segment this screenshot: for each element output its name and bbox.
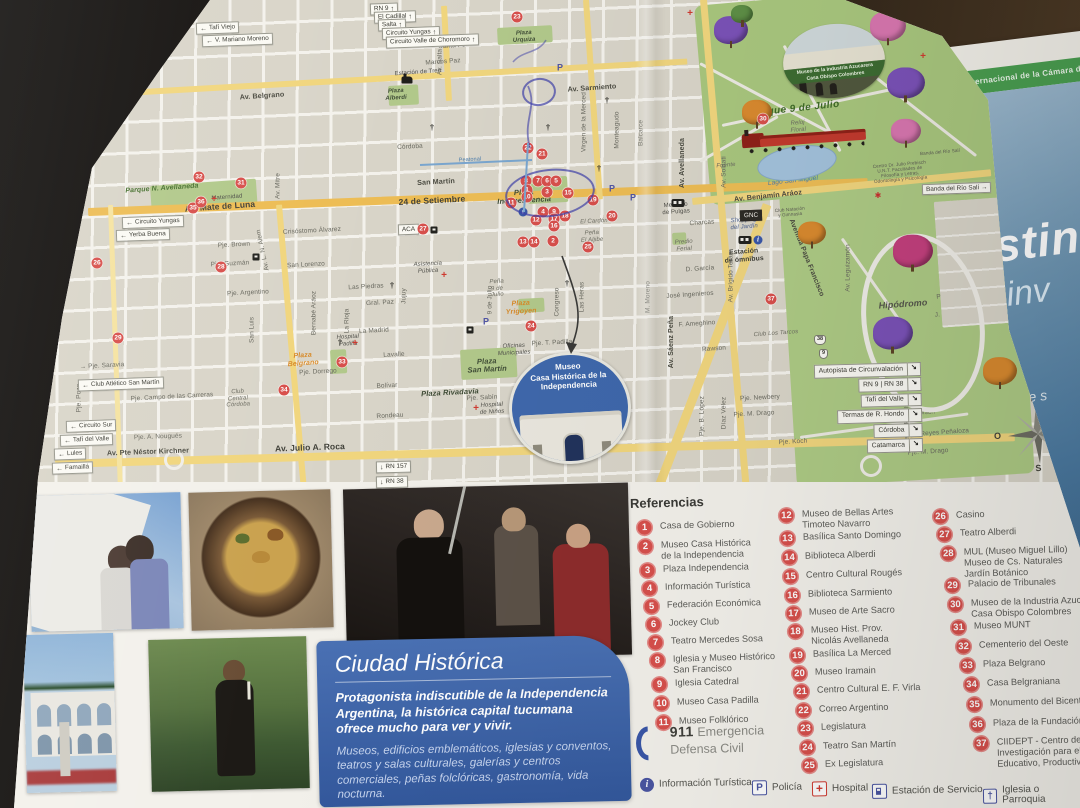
map-label: Plaza Alberdi [385, 88, 407, 103]
legend-item-hospital: +Hospital [812, 781, 868, 797]
map-label: Av. Soldati [720, 156, 727, 188]
park-tree [873, 317, 913, 350]
info-panel: Ciudad Histórica Protagonista indiscutib… [0, 482, 1080, 808]
map-label: Av. Sáenz Peña [668, 316, 676, 368]
reference-label: Correo Argentino [819, 700, 889, 719]
map-label: Av. Mitre [274, 173, 281, 199]
reference-item-13: 13Basílica Santo Domingo [779, 526, 957, 548]
reference-number: 21 [793, 683, 810, 700]
map-label: Av. Avellaneda [679, 138, 687, 188]
destination-sign: ←Yerba Buena [116, 228, 170, 242]
photo-couple-selfie [28, 492, 183, 632]
church-icon: † [605, 96, 609, 105]
map-label: Díaz Vélez [720, 397, 727, 429]
map-label: San Luis [248, 317, 255, 343]
map-marker-37: 37 [766, 294, 777, 305]
map-label: Pje. B. López [698, 396, 705, 436]
casa-historica-callout: Museo Casa Histórica de la Independencia [506, 349, 634, 467]
legend-label: Hospital [832, 783, 868, 794]
reference-label: Museo de Bellas Artes Timoteo Navarro [802, 504, 894, 530]
hosp-icon: + [473, 404, 479, 414]
map-marker-31: 31 [236, 178, 247, 189]
hosp-icon: + [920, 52, 926, 62]
church-icon: † [565, 279, 569, 288]
reference-number: 23 [797, 720, 814, 737]
legend-label: Estación de Servicio [892, 785, 983, 797]
gas-station-icon [872, 784, 887, 799]
map-marker-23: 23 [512, 12, 523, 23]
map-label: Jujuy [400, 288, 407, 304]
map-label: Córdoba [397, 143, 423, 152]
map-marker-2: 2 [548, 236, 559, 247]
ciudad-historica-body: Museos, edificios emblemáticos, iglesias… [336, 739, 613, 802]
park-tree [893, 235, 933, 268]
emergency-number: 911 [670, 723, 695, 740]
photo-locro-bowl [188, 489, 333, 630]
map-marker-24: 24 [526, 321, 537, 332]
map-label: La Rioja [343, 309, 350, 334]
map-label: El Cardón [580, 218, 608, 226]
reference-item-33: 33Plaza Belgrano [959, 653, 1080, 675]
map-label: Monteagudo [613, 111, 620, 148]
church-icon: † [390, 281, 394, 290]
reference-label: Iglesia Catedral [675, 674, 739, 693]
reference-label: Museo Iramain [815, 663, 876, 682]
hosp-icon: + [687, 9, 693, 19]
map-label: Av. Leguizamón [844, 244, 851, 291]
destination-sign: ←Lules [54, 447, 87, 460]
reference-label: Cementerio del Oeste [979, 635, 1069, 654]
reference-number: 20 [791, 665, 808, 682]
magazine-subtitle-fragment: inv [1005, 273, 1052, 312]
reference-label: Información Turística [665, 577, 751, 596]
hosp-icon: + [352, 339, 358, 349]
reference-label: Plaza Independencia [663, 559, 749, 578]
reference-number: 22 [795, 702, 812, 719]
destination-sign: ←Tafí del Valle [60, 433, 114, 447]
reference-number: 10 [653, 695, 670, 712]
map-marker-27: 27 [418, 224, 429, 235]
reference-number: 27 [936, 526, 953, 543]
reference-item-26: 26Casino [932, 504, 1080, 526]
reference-number: 12 [778, 507, 795, 524]
map-label: Predio Ferial [675, 239, 694, 254]
map-label: Bolívar [376, 382, 397, 390]
bus-icon [672, 199, 685, 207]
reference-label: Monumento del Bicentenario [990, 693, 1080, 713]
reference-item-14: 14Biblioteca Alberdi [781, 545, 959, 567]
map-marker-28: 28 [216, 262, 227, 273]
photo-vineyard-wine [148, 636, 310, 792]
reference-number: 1 [636, 519, 653, 536]
reference-number: 31 [950, 619, 967, 636]
map-label: Oficinas Municipales [497, 342, 530, 357]
compass-o: O [994, 432, 1002, 441]
reference-item-15: 15Centro Cultural Rougés [782, 564, 960, 586]
reference-number: 26 [932, 508, 949, 525]
ciudad-historica-title: Ciudad Histórica [335, 647, 612, 683]
photo-historical-costumes [343, 483, 632, 662]
reference-number: 6 [645, 616, 662, 633]
reference-number: 7 [647, 634, 664, 651]
reference-label: CIIDEPT - Centro de Innovación e Investi… [997, 731, 1080, 769]
reference-number: 2 [637, 538, 654, 555]
reference-number: 19 [789, 647, 806, 664]
reference-label: Ex Legislatura [825, 755, 884, 774]
reference-label: Basílica Santo Domingo [803, 527, 901, 547]
route-sign: ↓RN 157 [376, 461, 411, 474]
park-tree [983, 357, 1017, 385]
reference-number: 18 [787, 623, 804, 640]
reference-item-29: 29Palacio de Tribunales [944, 573, 1080, 595]
map-label: Plaza Belgrano [287, 351, 319, 369]
reference-number: 28 [940, 545, 957, 562]
reference-number: 33 [959, 657, 976, 674]
reference-label: Centro Cultural E. F. Virla [817, 680, 921, 700]
highway-sign-row: Catamarca↘ [771, 438, 923, 456]
reference-number: 30 [947, 596, 964, 613]
phone-icon [636, 726, 662, 761]
map-label: Congreso [553, 288, 560, 317]
map-marker-13: 13 [518, 237, 529, 248]
reference-item-36: 36Plaza de la Fundación [969, 712, 1080, 734]
reference-number: 4 [641, 580, 658, 597]
church-icon: † [338, 338, 342, 347]
poi-sign: Banda del Río Salí → [922, 182, 992, 196]
reference-label: Casa Belgraniana [987, 674, 1060, 693]
reference-label: Iglesia y Museo Histórico San Francisco [673, 649, 776, 675]
hosp-icon: + [211, 195, 217, 205]
legend-label: Policía [772, 782, 802, 793]
info-icon: i [754, 236, 763, 245]
map-marker-25: 25 [583, 242, 594, 253]
destination-sign: ←Tafí Viejo [196, 21, 240, 34]
magazine-title-fragment: stin [992, 213, 1080, 269]
reference-item-21: 21Centro Cultural E. F. Virla [793, 679, 971, 701]
map-label: La Madrid [359, 327, 389, 336]
fuel-icon [431, 227, 438, 234]
reference-number: 32 [955, 638, 972, 655]
emergency-block: 911 Emergencia Defensa Civil [636, 720, 765, 760]
emergency-label2: Defensa Civil [670, 741, 744, 757]
p-icon: P [630, 194, 636, 203]
emergency-label: Emergencia [697, 723, 764, 739]
reference-item-37: 37CIIDEPT - Centro de Innovación e Inves… [973, 731, 1080, 770]
reference-label: Teatro Mercedes Sosa [671, 631, 763, 650]
reference-label: Jockey Club [669, 614, 719, 632]
reference-label: Museo MUNT [974, 617, 1031, 635]
ciudad-historica-lead: Protagonista indiscutible de la Independ… [335, 685, 612, 738]
map-label: Club Central Córdoba [226, 388, 251, 409]
reference-item-25: 25Ex Legislatura [801, 753, 979, 775]
legend-item-fuel: Estación de Servicio [872, 782, 983, 799]
train-icon [402, 77, 413, 84]
star-icon: ✱ [875, 192, 882, 200]
city-map: 389Av. BelgranoAv. SarmientoSanta FeMarc… [0, 0, 1080, 492]
map-marker-29: 29 [113, 333, 124, 344]
reference-label: Teatro Alberdi [960, 524, 1017, 542]
reference-item-32: 32Cementerio del Oeste [955, 634, 1080, 656]
legend-item-church: †Iglesia o Parroquia [983, 784, 1080, 806]
fuel-icon [253, 254, 260, 261]
p-icon: P [557, 64, 563, 73]
legend-label: Iglesia o Parroquia [1002, 784, 1080, 805]
reference-number: 9 [651, 676, 668, 693]
destination-sign: ←V. Mariano Moreno [202, 33, 273, 47]
reference-number: 13 [779, 530, 796, 547]
reference-label: Plaza de la Fundación [993, 713, 1080, 732]
map-marker-26: 26 [92, 258, 103, 269]
photo-colonial-arches [23, 633, 117, 793]
church-icon: † [983, 788, 997, 803]
reference-number: 14 [781, 549, 798, 566]
reference-number: 24 [799, 739, 816, 756]
reference-item-31: 31Museo MUNT [950, 615, 1080, 637]
ciudad-historica-card: Ciudad Histórica Protagonista indiscutib… [316, 635, 631, 807]
map-marker-32: 32 [194, 172, 205, 183]
hosp-icon: + [441, 271, 447, 281]
referencias-title: Referencias [630, 495, 704, 510]
reference-number: 29 [944, 577, 961, 594]
destination-sign: ←Circuito Sur [66, 419, 117, 433]
map-label: Plaza Yrigoyen [505, 299, 537, 316]
reference-number: 36 [969, 716, 986, 733]
map-marker-33: 33 [337, 357, 348, 368]
park-tree [891, 119, 921, 144]
roundabout [860, 455, 882, 477]
paper-crease [636, 0, 666, 492]
reference-number: 15 [782, 568, 799, 585]
destination-sign: ←Famaillá [52, 461, 94, 474]
map-marker-22: 22 [523, 143, 534, 154]
map-label: Bernabé Aráoz [310, 291, 317, 335]
park-tree [798, 222, 826, 245]
map-marker-20: 20 [607, 211, 618, 222]
casa-historica-facade [519, 410, 623, 465]
map-label: Estación de ómnibus [724, 247, 764, 265]
reference-item-35: 35Monumento del Bicentenario [966, 692, 1080, 714]
reference-label: Federación Económica [667, 595, 761, 614]
reference-label: Museo Casa Padilla [677, 693, 759, 712]
map-label: Hospital de Niños [479, 402, 504, 417]
church-icon: † [597, 164, 601, 173]
reference-label: Biblioteca Alberdi [805, 547, 876, 566]
map-label: Virgen de la Merced [580, 92, 587, 152]
map-label: Asistencia Pública [413, 261, 442, 276]
reference-label: Basílica La Merced [813, 645, 892, 664]
reference-label: Casino [956, 507, 985, 525]
p-icon: P [609, 185, 615, 194]
reference-label: Teatro San Martín [823, 737, 896, 756]
map-marker-21: 21 [537, 149, 548, 160]
map-paper: 389Av. BelgranoAv. SarmientoSanta FeMarc… [0, 0, 1080, 808]
reference-number: 37 [973, 735, 990, 752]
photo-of-tourist-map: internacional de la Cámara de Tu stin in… [0, 0, 1080, 808]
map-label: Plaza Urquiza [512, 30, 535, 45]
destination-sign: ←Circuito Yungas [122, 215, 184, 229]
reference-item-27: 27Teatro Alberdi [936, 522, 1080, 544]
reference-item-23: 23Legislatura [797, 716, 975, 738]
legend-label: Información Turística [659, 778, 752, 790]
map-label: Rondeau [376, 412, 403, 421]
reference-number: 17 [785, 605, 802, 622]
church-icon: † [430, 123, 434, 132]
hospital-icon: + [812, 781, 827, 796]
reference-label: Centro Cultural Rougés [806, 565, 902, 585]
reference-label: Plaza Belgrano [983, 655, 1046, 674]
map-label: Gral. Paz [366, 299, 394, 308]
highway-sign-block: Autopista de Circunvalación↘RN 9 | RN 38… [769, 362, 923, 458]
route-sign: ↓RN 38 [376, 476, 408, 489]
map-label: Plaza San Martín [467, 357, 507, 376]
legend-item-police: PPolicía [752, 780, 802, 796]
reference-label: Biblioteca Sarmiento [808, 584, 893, 603]
map-marker-36: 36 [196, 197, 207, 208]
reference-number: 34 [963, 676, 980, 693]
reference-label: Museo Hist. Prov. Nicolás Avellaneda [811, 621, 889, 647]
reference-label: Legislatura [821, 719, 866, 737]
reference-number: 35 [966, 696, 983, 713]
reference-number: 8 [649, 652, 666, 669]
map-marker-14: 14 [529, 237, 540, 248]
reference-label: Palacio de Tribunales [968, 574, 1056, 593]
reference-number: 3 [639, 562, 656, 579]
reference-label: Museo Casa Histórica de la Independencia [661, 535, 751, 561]
route-shield: 38 [814, 335, 826, 345]
reference-number: 25 [801, 757, 818, 774]
poi-sign: ACA [398, 224, 420, 236]
legend-item-info: iInformación Turística [640, 776, 752, 792]
bus-icon [739, 236, 752, 244]
route-shield: 9 [819, 349, 828, 359]
map-marker-16: 16 [549, 221, 560, 232]
reference-number: 5 [643, 598, 660, 615]
fuel-icon [467, 327, 474, 334]
poi-sign: GNC [740, 210, 763, 222]
map-label: Peña 9 de Julio [489, 279, 504, 300]
church-icon: † [546, 123, 550, 132]
tourist-info-icon: i [640, 778, 654, 792]
reference-number: 16 [784, 587, 801, 604]
reference-item-34: 34Casa Belgraniana [963, 672, 1080, 694]
map-label: Las Heras [578, 282, 585, 313]
map-marker-30: 30 [758, 114, 769, 125]
map-label: Lavalle [383, 351, 405, 359]
reference-label: Casa de Gobierno [660, 517, 735, 536]
map-marker-34: 34 [279, 385, 290, 396]
p-icon: P [483, 318, 489, 327]
map-label: Peatonal [459, 156, 482, 163]
police-icon: P [752, 780, 767, 795]
reference-label: Museo de Arte Sacro [809, 602, 895, 621]
compass-s: S [1035, 464, 1042, 473]
